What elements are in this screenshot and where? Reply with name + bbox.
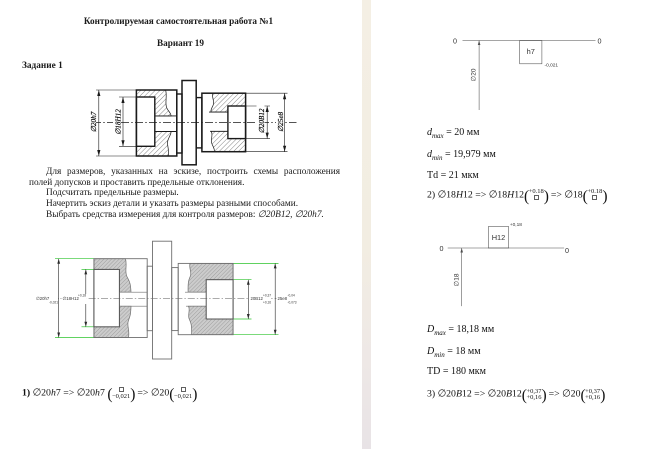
svg-text:+0,18: +0,18 <box>78 294 86 298</box>
svg-text:H12: H12 <box>492 233 506 242</box>
svg-text:∅20: ∅20 <box>471 68 478 81</box>
svg-text:∅20h7: ∅20h7 <box>90 111 98 132</box>
svg-text:+0,37: +0,37 <box>263 294 271 298</box>
svg-text:25e8: 25e8 <box>278 296 288 301</box>
svg-text:∅18H12: ∅18H12 <box>115 109 123 135</box>
svg-text:+0,16: +0,16 <box>263 301 271 305</box>
svg-text:∅20B12: ∅20B12 <box>258 108 266 133</box>
svg-text:-0,021: -0,021 <box>49 301 58 305</box>
svg-text:-0,073: -0,073 <box>288 301 297 305</box>
svg-text:∅25e8: ∅25e8 <box>277 111 285 132</box>
svg-text:∅20h7: ∅20h7 <box>36 296 50 301</box>
svg-text:-0,021: -0,021 <box>545 63 559 69</box>
svg-text:0: 0 <box>598 37 602 46</box>
svg-text:+0,18: +0,18 <box>510 222 522 228</box>
svg-text:20B12: 20B12 <box>251 296 264 301</box>
svg-text:0: 0 <box>565 246 569 255</box>
svg-text:∅18: ∅18 <box>453 273 460 286</box>
svg-text:0: 0 <box>440 244 444 253</box>
svg-text:-0,04: -0,04 <box>288 294 295 298</box>
svg-text:0: 0 <box>453 37 457 46</box>
svg-text:h7: h7 <box>527 47 535 56</box>
svg-text:∅18H12: ∅18H12 <box>63 296 80 301</box>
